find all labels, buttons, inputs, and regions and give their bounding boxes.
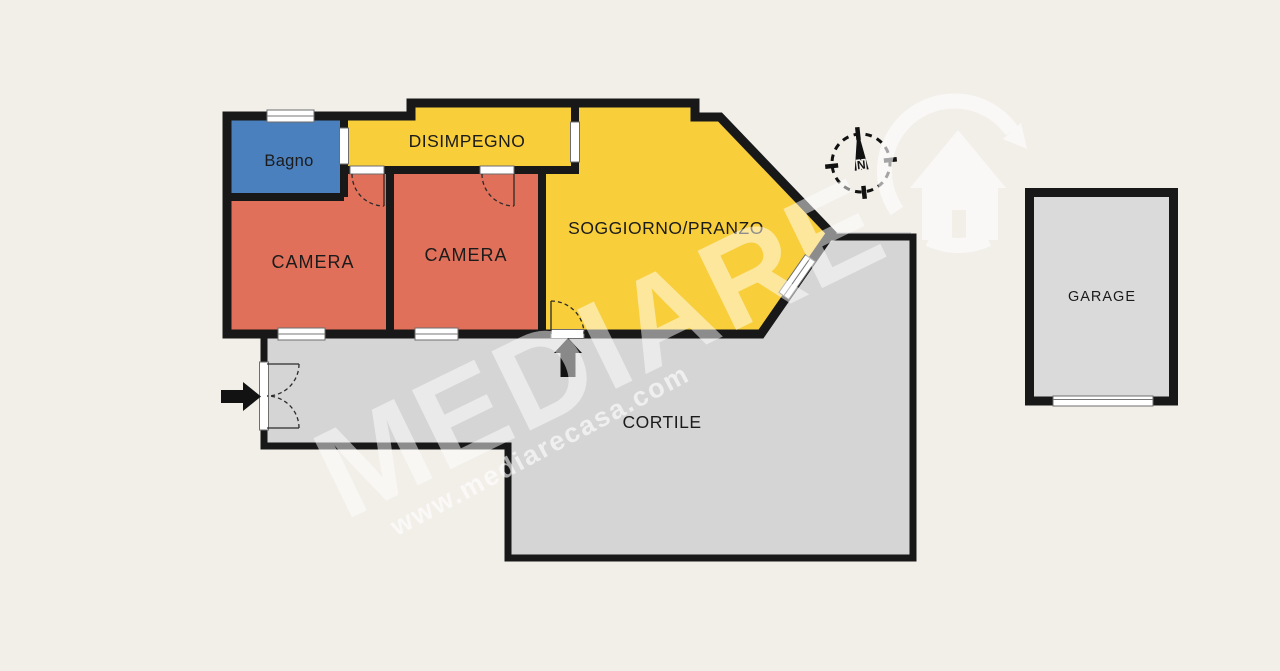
camera1-window [278,328,325,340]
camera2-door-opening [480,166,514,174]
floor-plan-page: Bagno DISIMPEGNO CAMERA CAMERA SOGGIORNO… [0,0,1280,671]
compass-north-label: N [856,158,866,173]
camera2-window [415,328,458,340]
camera2-label: CAMERA [424,245,507,265]
floor-plan-svg: Bagno DISIMPEGNO CAMERA CAMERA SOGGIORNO… [0,0,1280,671]
bagno-door-opening [340,128,349,164]
disimpegno-label: DISIMPEGNO [409,131,526,151]
camera1-door-opening [350,166,384,174]
garage-label: GARAGE [1068,289,1136,305]
garage-door-opening [1053,396,1153,406]
bagno-label: Bagno [264,152,313,170]
bagno-window [267,110,314,122]
disimpegno-soggiorno-passage [571,122,580,162]
camera1-label: CAMERA [271,252,354,272]
